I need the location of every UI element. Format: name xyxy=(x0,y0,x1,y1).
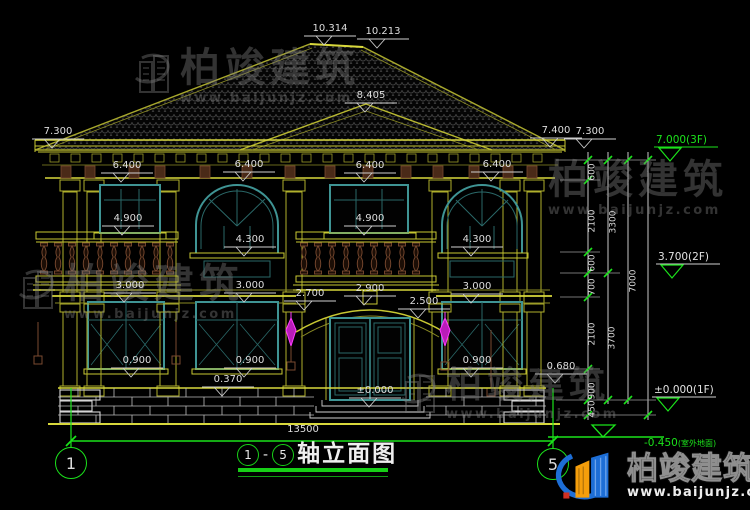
axis-bubble: 1 xyxy=(55,447,87,479)
dim-label: 10.213 xyxy=(366,27,401,37)
dim-label: 6.400 xyxy=(235,160,264,170)
dim-label: 7.300 xyxy=(44,127,73,137)
title-underline xyxy=(238,468,388,472)
dim-label: 3.000 xyxy=(463,282,492,292)
title-axis-bubble-end: 5 xyxy=(272,444,294,466)
level-label: 3.700(2F) xyxy=(658,252,709,263)
chain-dimension-label: 450 xyxy=(589,400,598,417)
level-label: ±0.000(1F) xyxy=(654,385,714,396)
title-axis-separator: - xyxy=(263,447,268,463)
dim-label: 10.314 xyxy=(313,24,348,34)
chain-dimension-label: 900 xyxy=(589,382,598,399)
chain-dimension-label: 700 xyxy=(589,278,598,295)
dim-label: 0.680 xyxy=(547,362,576,372)
dim-label: 3.000 xyxy=(116,281,145,291)
chain-dimension-label: 7000 xyxy=(630,270,639,293)
title-text: 轴立面图 xyxy=(297,443,397,466)
dim-label: 3.000 xyxy=(236,281,265,291)
dim-label: 7.300 xyxy=(576,127,605,137)
dim-label: 2.700 xyxy=(296,289,325,299)
dim-label: 8.405 xyxy=(357,91,386,101)
dim-label: 6.400 xyxy=(113,161,142,171)
cad-canvas: { "drawing_title": {"axis_start":"1","se… xyxy=(0,0,750,510)
chain-dimension-label: 3700 xyxy=(609,327,618,350)
title-underline-thin xyxy=(238,476,388,477)
dim-label: 0.900 xyxy=(236,356,265,366)
dim-label: 0.900 xyxy=(463,356,492,366)
brand-name: 柏竣建筑 xyxy=(627,454,750,485)
dim-label: 0.900 xyxy=(123,356,152,366)
overall-dimension-label: 13500 xyxy=(287,425,319,435)
chain-dimension-label: 2100 xyxy=(589,210,598,233)
drawing-title: 1 - 5 轴立面图 xyxy=(237,443,397,466)
chain-dimension-label: 2100 xyxy=(589,323,598,346)
title-axis-bubble-start: 1 xyxy=(237,444,259,466)
brand-logo-icon xyxy=(546,446,624,506)
level-label: 7.000(3F) xyxy=(656,135,707,146)
dim-label: 4.900 xyxy=(114,214,143,224)
elevation-sheet: 柏竣建筑www.baijunjz.com柏竣建筑www.baijunjz.com… xyxy=(0,0,750,510)
dim-label: 6.400 xyxy=(483,160,512,170)
dim-label: 4.300 xyxy=(236,235,265,245)
brand-logo: 柏竣建筑 www.baijunjz.com xyxy=(546,446,750,506)
dim-label: ±0.000 xyxy=(356,386,393,396)
dim-label: 7.400 xyxy=(542,126,571,136)
dim-label: 2.500 xyxy=(410,297,439,307)
chain-dimension-label: 3300 xyxy=(610,211,619,234)
chain-dimension-label: 600 xyxy=(589,254,598,271)
brand-url: www.baijunjz.com xyxy=(627,486,750,499)
dim-label: 6.400 xyxy=(356,161,385,171)
dim-label: 0.370 xyxy=(214,375,243,385)
annotation-layer: 10.31410.2138.4057.3007.4007.3006.4006.4… xyxy=(0,0,750,510)
dim-label: 4.300 xyxy=(463,235,492,245)
dim-label: 4.900 xyxy=(356,214,385,224)
dim-label: 2.900 xyxy=(356,284,385,294)
chain-dimension-label: 600 xyxy=(589,163,598,180)
